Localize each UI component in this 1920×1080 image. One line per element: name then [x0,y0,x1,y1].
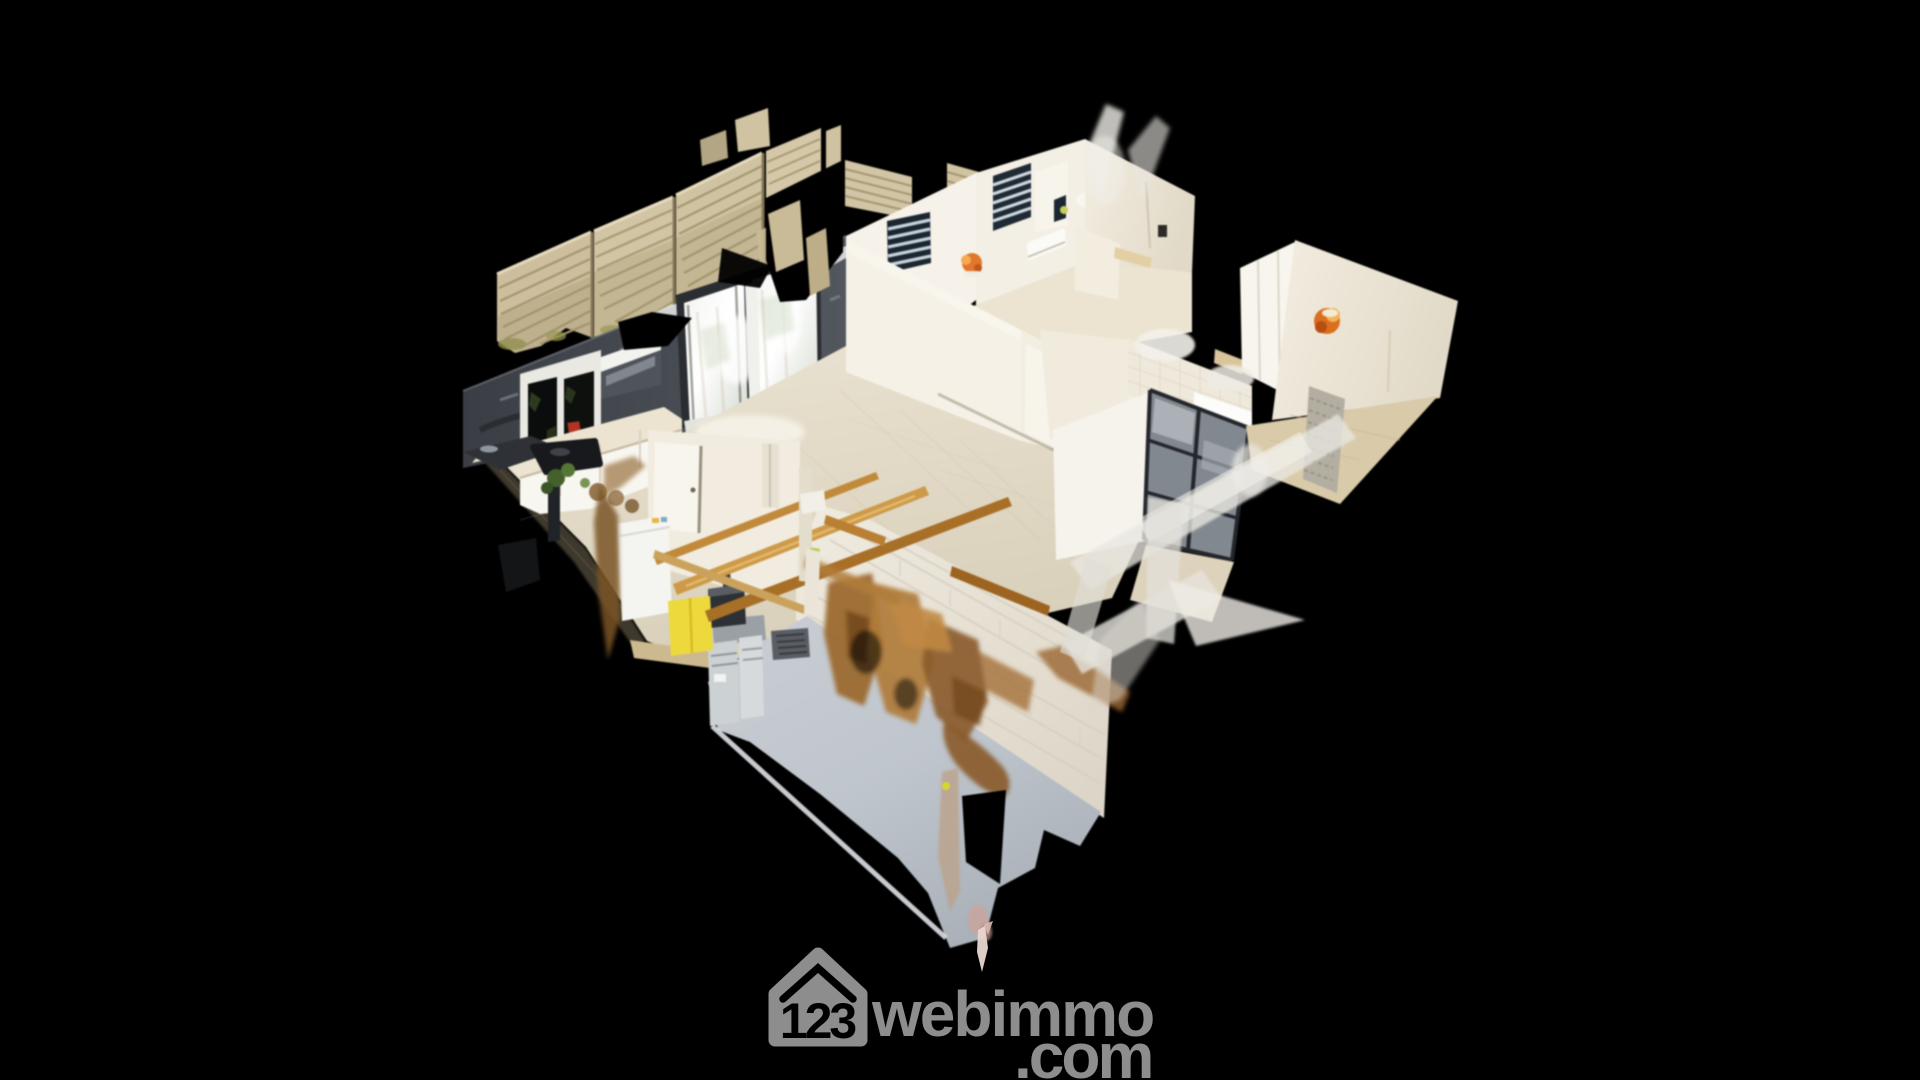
svg-text:123: 123 [780,993,856,1049]
svg-text:.com: .com [1014,1020,1151,1080]
